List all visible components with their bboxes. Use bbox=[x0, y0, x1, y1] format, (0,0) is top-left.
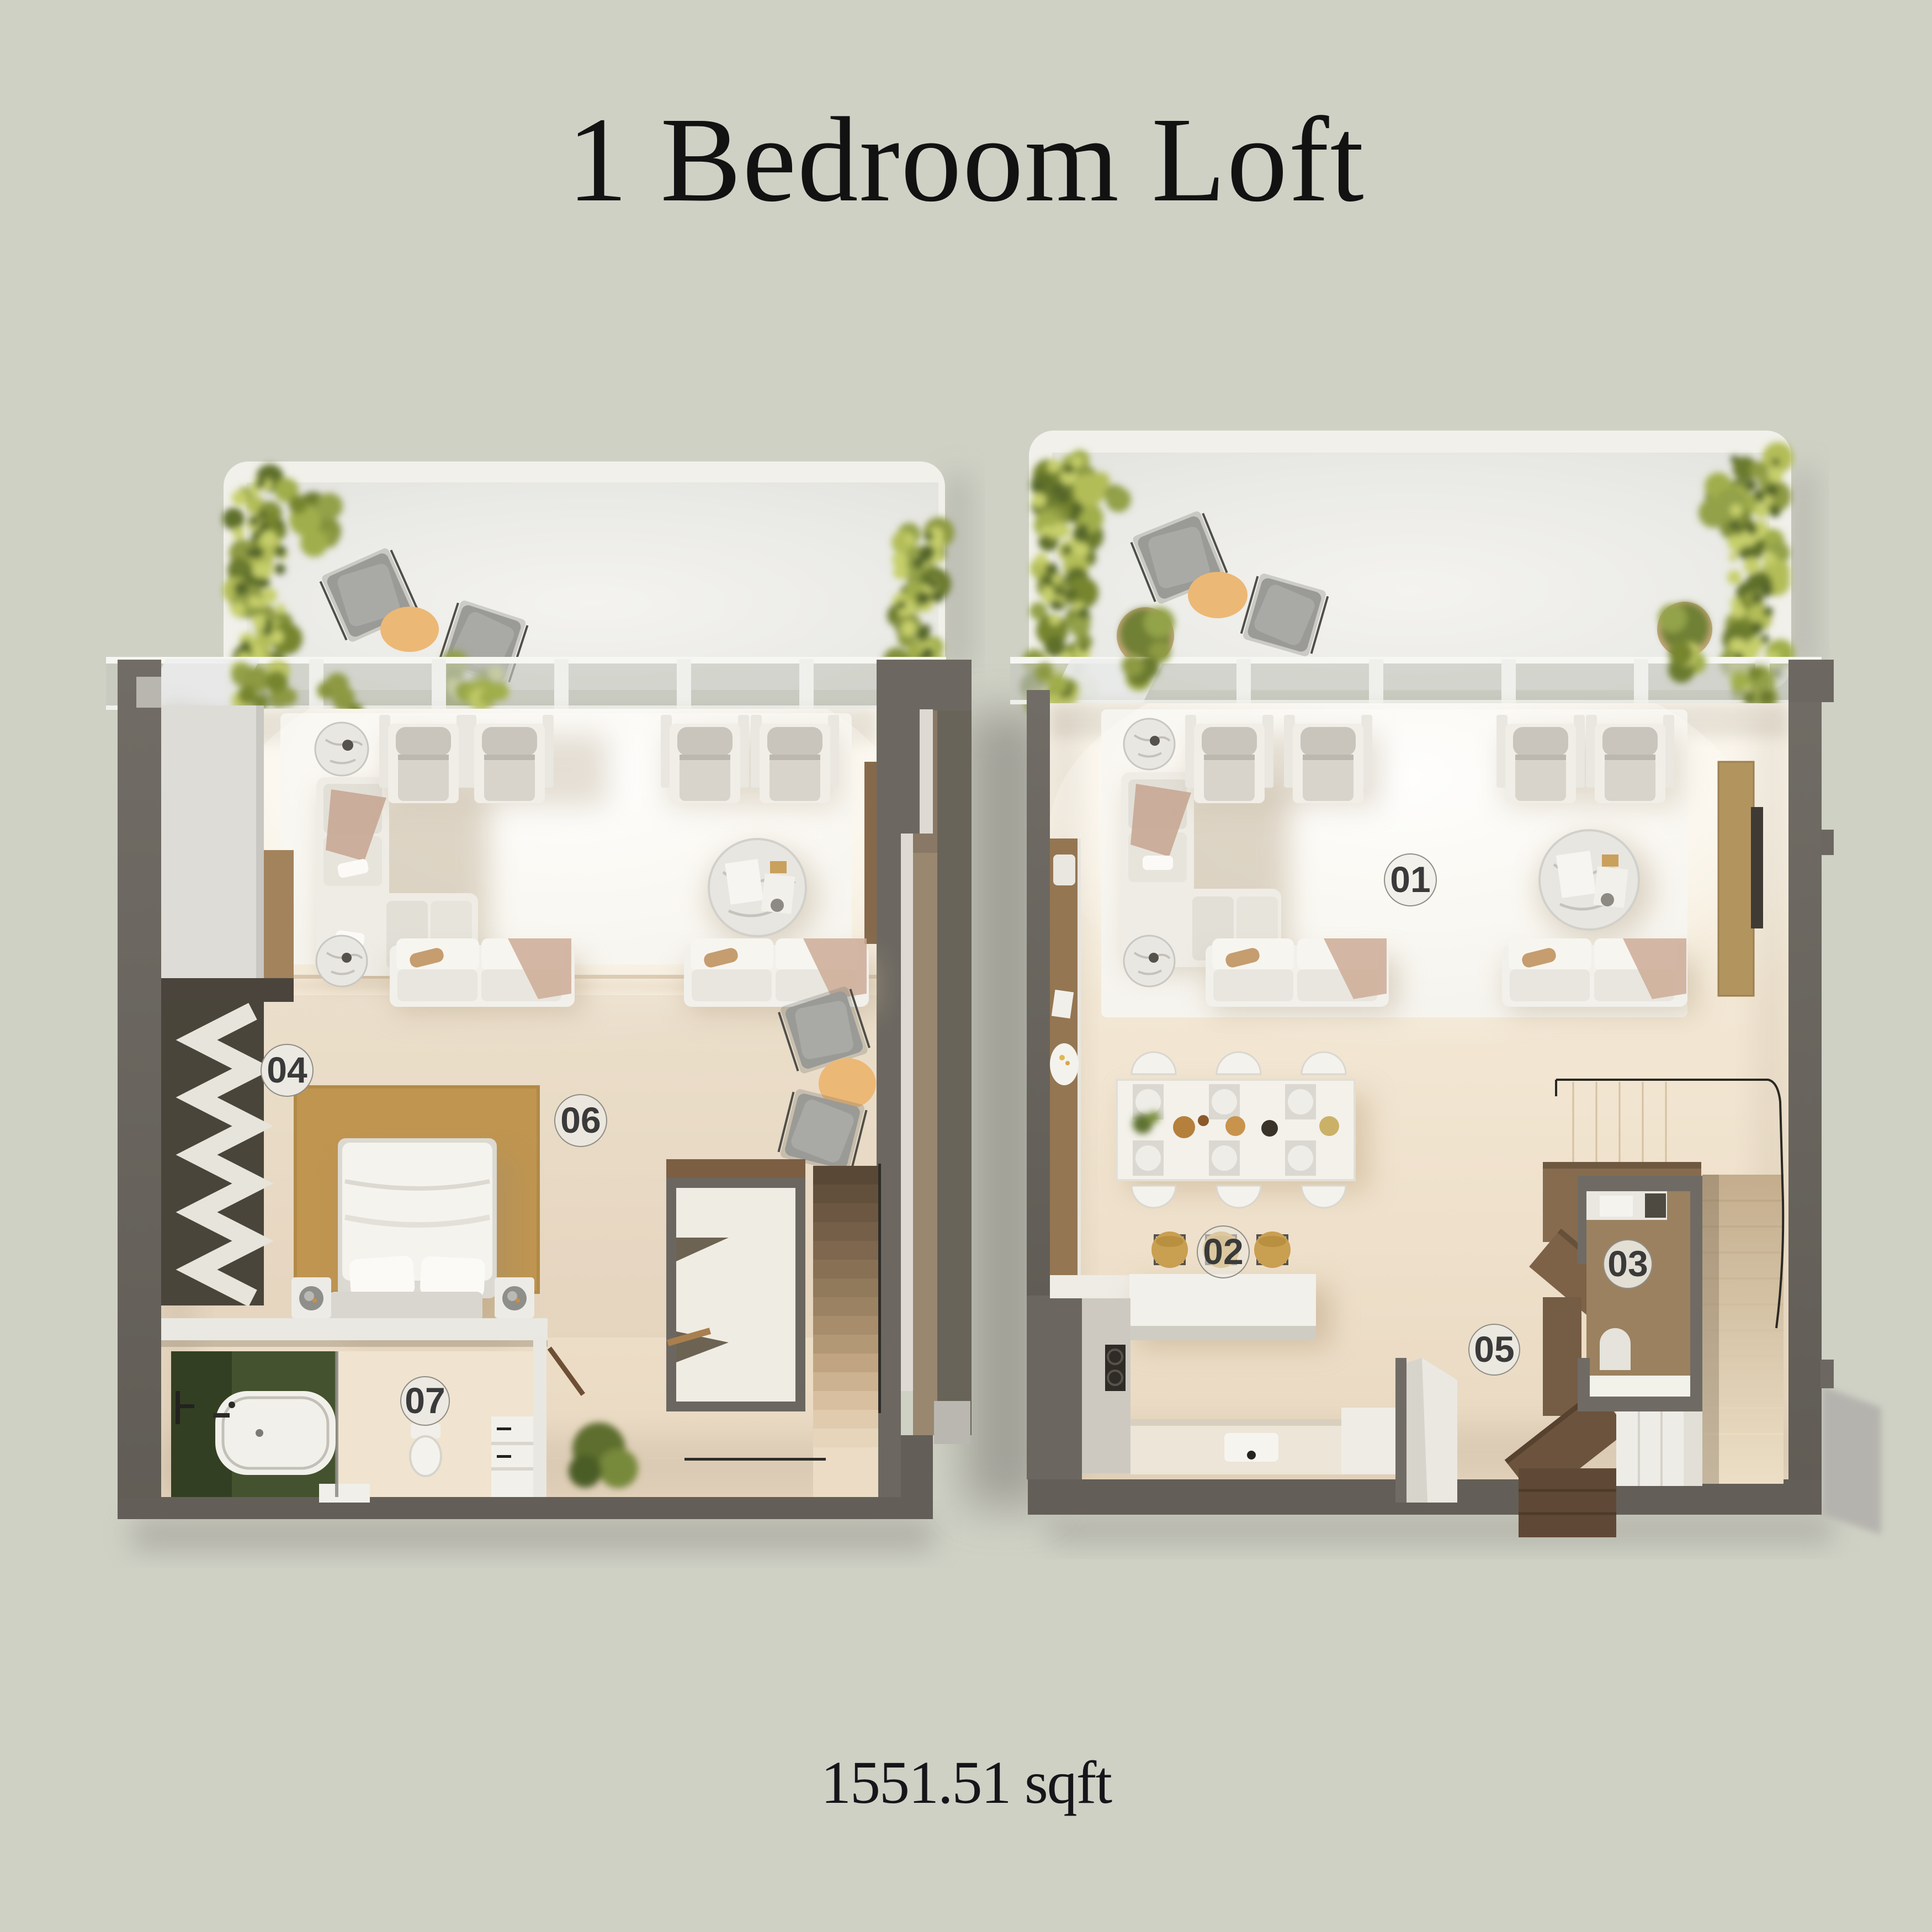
svg-text:06: 06 bbox=[560, 1100, 601, 1140]
svg-text:04: 04 bbox=[267, 1049, 307, 1090]
svg-text:05: 05 bbox=[1474, 1329, 1514, 1370]
svg-text:1551.51 sqft: 1551.51 sqft bbox=[821, 1749, 1112, 1816]
svg-text:02: 02 bbox=[1203, 1231, 1243, 1272]
svg-text:07: 07 bbox=[405, 1380, 445, 1421]
svg-text:1 Bedroom Loft: 1 Bedroom Loft bbox=[567, 92, 1365, 227]
svg-text:01: 01 bbox=[1390, 859, 1430, 900]
svg-text:03: 03 bbox=[1607, 1243, 1648, 1284]
